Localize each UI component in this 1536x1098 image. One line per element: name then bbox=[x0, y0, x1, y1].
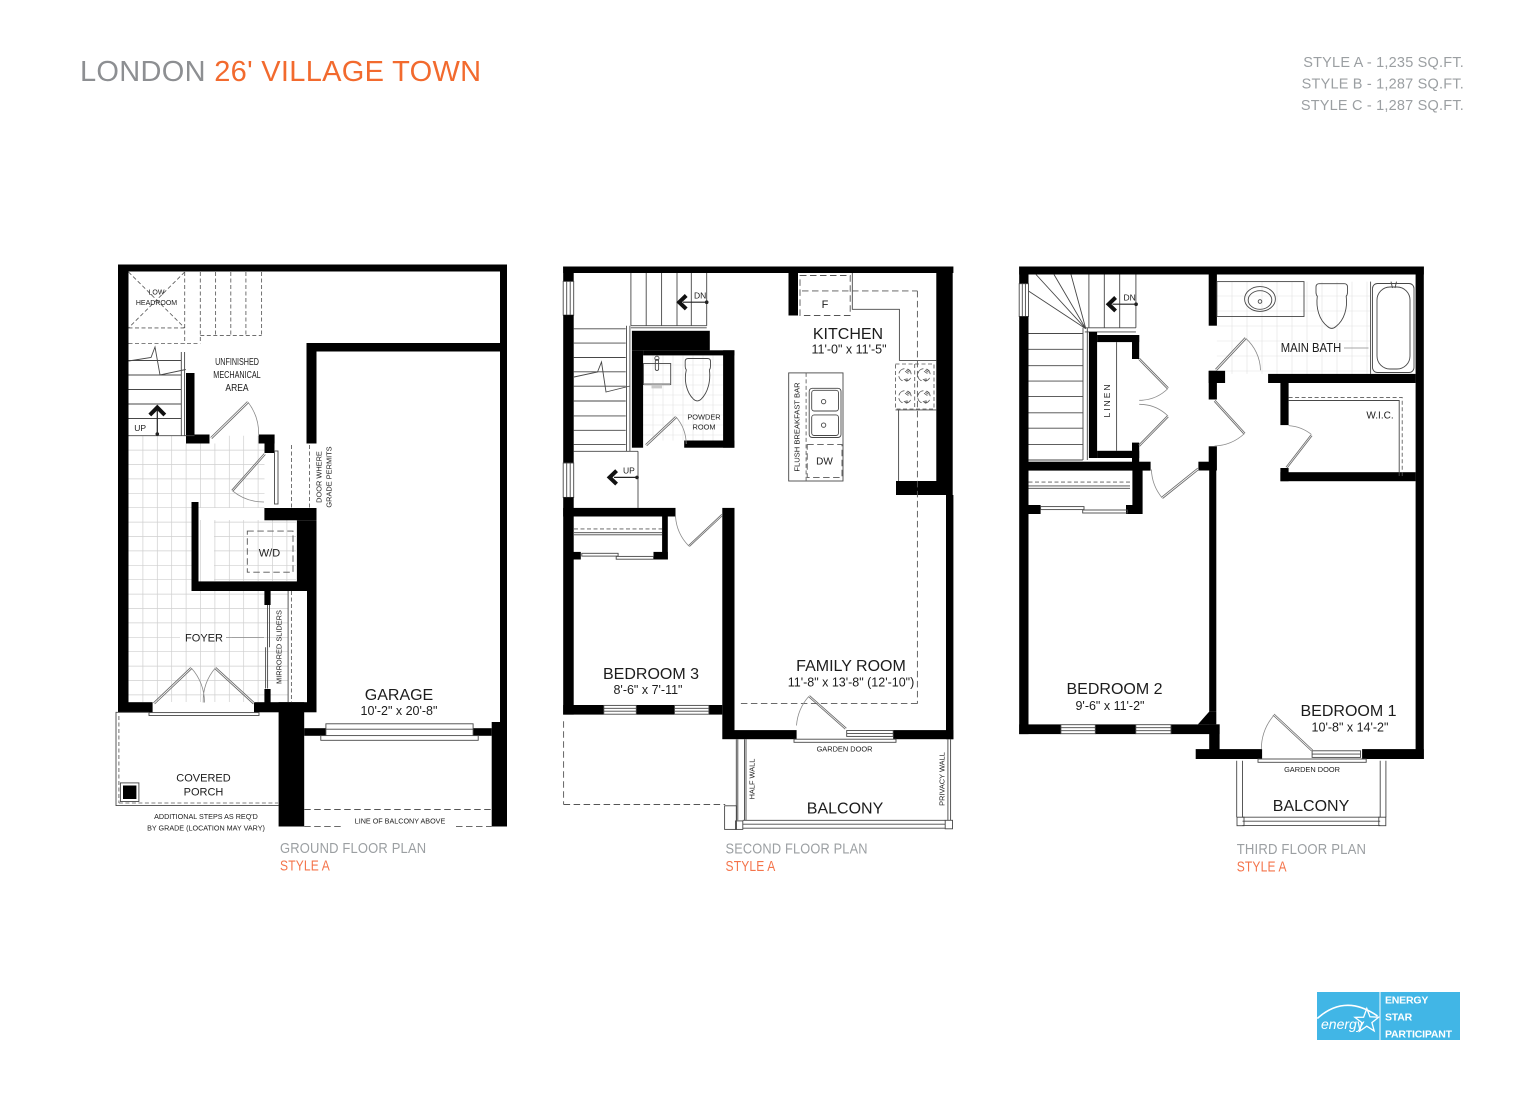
svg-text:ROOM: ROOM bbox=[693, 423, 716, 432]
svg-text:PORCH: PORCH bbox=[184, 787, 224, 799]
svg-text:DW: DW bbox=[816, 457, 833, 468]
svg-text:BY GRADE (LOCATION MAY VARY): BY GRADE (LOCATION MAY VARY) bbox=[147, 824, 265, 833]
svg-text:AREA: AREA bbox=[225, 383, 249, 394]
svg-text:10'-8" x 14'-2": 10'-8" x 14'-2" bbox=[1312, 721, 1389, 735]
svg-text:BEDROOM 3: BEDROOM 3 bbox=[603, 666, 699, 683]
svg-text:GARDEN DOOR: GARDEN DOOR bbox=[1284, 765, 1340, 774]
svg-text:DOOR WHERE: DOOR WHERE bbox=[315, 451, 324, 503]
svg-text:STAR: STAR bbox=[1385, 1012, 1413, 1024]
svg-text:STYLE A: STYLE A bbox=[726, 859, 776, 875]
svg-text:STYLE A: STYLE A bbox=[280, 859, 330, 875]
svg-text:THIRD FLOOR PLAN: THIRD FLOOR PLAN bbox=[1237, 842, 1367, 858]
svg-text:STYLE A - 1,235 SQ.FT.: STYLE A - 1,235 SQ.FT. bbox=[1303, 55, 1464, 71]
svg-text:8'-6" x 7'-11": 8'-6" x 7'-11" bbox=[613, 683, 682, 697]
svg-text:BALCONY: BALCONY bbox=[807, 801, 884, 818]
svg-text:FAMILY ROOM: FAMILY ROOM bbox=[796, 658, 906, 675]
svg-text:GARDEN DOOR: GARDEN DOOR bbox=[817, 745, 873, 754]
svg-text:BALCONY: BALCONY bbox=[1273, 798, 1350, 815]
svg-text:DN: DN bbox=[1124, 293, 1136, 303]
svg-text:POWDER: POWDER bbox=[687, 413, 720, 422]
svg-text:ADDITIONAL STEPS AS REQ'D: ADDITIONAL STEPS AS REQ'D bbox=[154, 812, 258, 821]
svg-text:MECHANICAL: MECHANICAL bbox=[213, 370, 261, 381]
svg-text:HALF WALL: HALF WALL bbox=[748, 759, 757, 800]
svg-text:W.I.C.: W.I.C. bbox=[1366, 411, 1393, 422]
svg-text:LINEN: LINEN bbox=[1102, 382, 1112, 417]
svg-text:SECOND FLOOR PLAN: SECOND FLOOR PLAN bbox=[726, 842, 868, 858]
svg-text:PRIVACY WALL: PRIVACY WALL bbox=[938, 752, 947, 806]
svg-text:UP: UP bbox=[623, 466, 635, 476]
svg-text:10'-2" x 20'-8": 10'-2" x 20'-8" bbox=[361, 704, 438, 718]
svg-text:UP: UP bbox=[134, 423, 146, 433]
svg-text:11'-8" x 13'-8" (12'-10"): 11'-8" x 13'-8" (12'-10") bbox=[788, 676, 915, 690]
svg-text:MIRRORED SLIDERS: MIRRORED SLIDERS bbox=[275, 610, 284, 684]
svg-text:KITCHEN: KITCHEN bbox=[813, 326, 883, 343]
svg-text:11'-0" x 11'-5": 11'-0" x 11'-5" bbox=[811, 343, 886, 357]
svg-text:DN: DN bbox=[694, 291, 706, 301]
svg-text:FLUSH BREAKFAST BAR: FLUSH BREAKFAST BAR bbox=[793, 382, 802, 472]
svg-text:STYLE C - 1,287 SQ.FT.: STYLE C - 1,287 SQ.FT. bbox=[1301, 98, 1464, 114]
svg-text:W/D: W/D bbox=[259, 548, 280, 560]
svg-text:GARAGE: GARAGE bbox=[365, 687, 433, 704]
svg-text:F: F bbox=[822, 299, 829, 311]
svg-text:LOW: LOW bbox=[149, 290, 165, 297]
svg-text:STYLE B - 1,287 SQ.FT.: STYLE B - 1,287 SQ.FT. bbox=[1302, 77, 1464, 93]
svg-text:LINE OF BALCONY ABOVE: LINE OF BALCONY ABOVE bbox=[355, 817, 446, 826]
svg-text:PARTICIPANT: PARTICIPANT bbox=[1385, 1029, 1453, 1041]
svg-text:BEDROOM 2: BEDROOM 2 bbox=[1066, 681, 1162, 698]
svg-text:9'-6" x 11'-2": 9'-6" x 11'-2" bbox=[1075, 699, 1144, 713]
svg-text:energy: energy bbox=[1321, 1016, 1365, 1032]
svg-text:GRADE PERMITS: GRADE PERMITS bbox=[325, 446, 334, 507]
svg-text:STYLE A: STYLE A bbox=[1237, 860, 1287, 876]
svg-text:HEADROOM: HEADROOM bbox=[136, 300, 177, 307]
svg-text:MAIN BATH: MAIN BATH bbox=[1281, 341, 1342, 355]
svg-text:LONDON 26' VILLAGE TOWN: LONDON 26' VILLAGE TOWN bbox=[80, 56, 481, 88]
svg-text:ENERGY: ENERGY bbox=[1385, 995, 1428, 1007]
svg-text:BEDROOM 1: BEDROOM 1 bbox=[1300, 703, 1396, 720]
svg-text:COVERED: COVERED bbox=[176, 773, 230, 785]
svg-text:UNFINISHED: UNFINISHED bbox=[215, 357, 259, 368]
svg-text:GROUND FLOOR PLAN: GROUND FLOOR PLAN bbox=[280, 841, 426, 857]
svg-text:FOYER: FOYER bbox=[185, 633, 223, 645]
